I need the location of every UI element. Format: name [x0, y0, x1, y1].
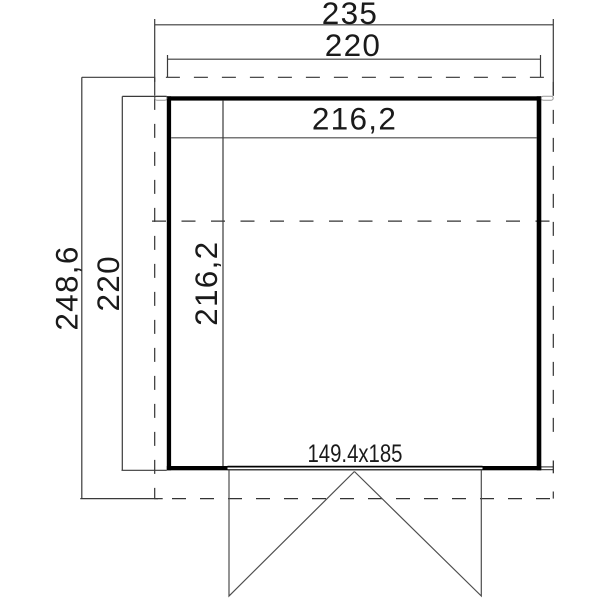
svg-text:216,2: 216,2 — [188, 241, 224, 326]
svg-text:220: 220 — [325, 27, 381, 63]
svg-text:149.4x185: 149.4x185 — [308, 441, 403, 468]
svg-text:220: 220 — [90, 255, 126, 311]
svg-text:216,2: 216,2 — [312, 101, 397, 137]
svg-text:248,6: 248,6 — [49, 245, 85, 330]
